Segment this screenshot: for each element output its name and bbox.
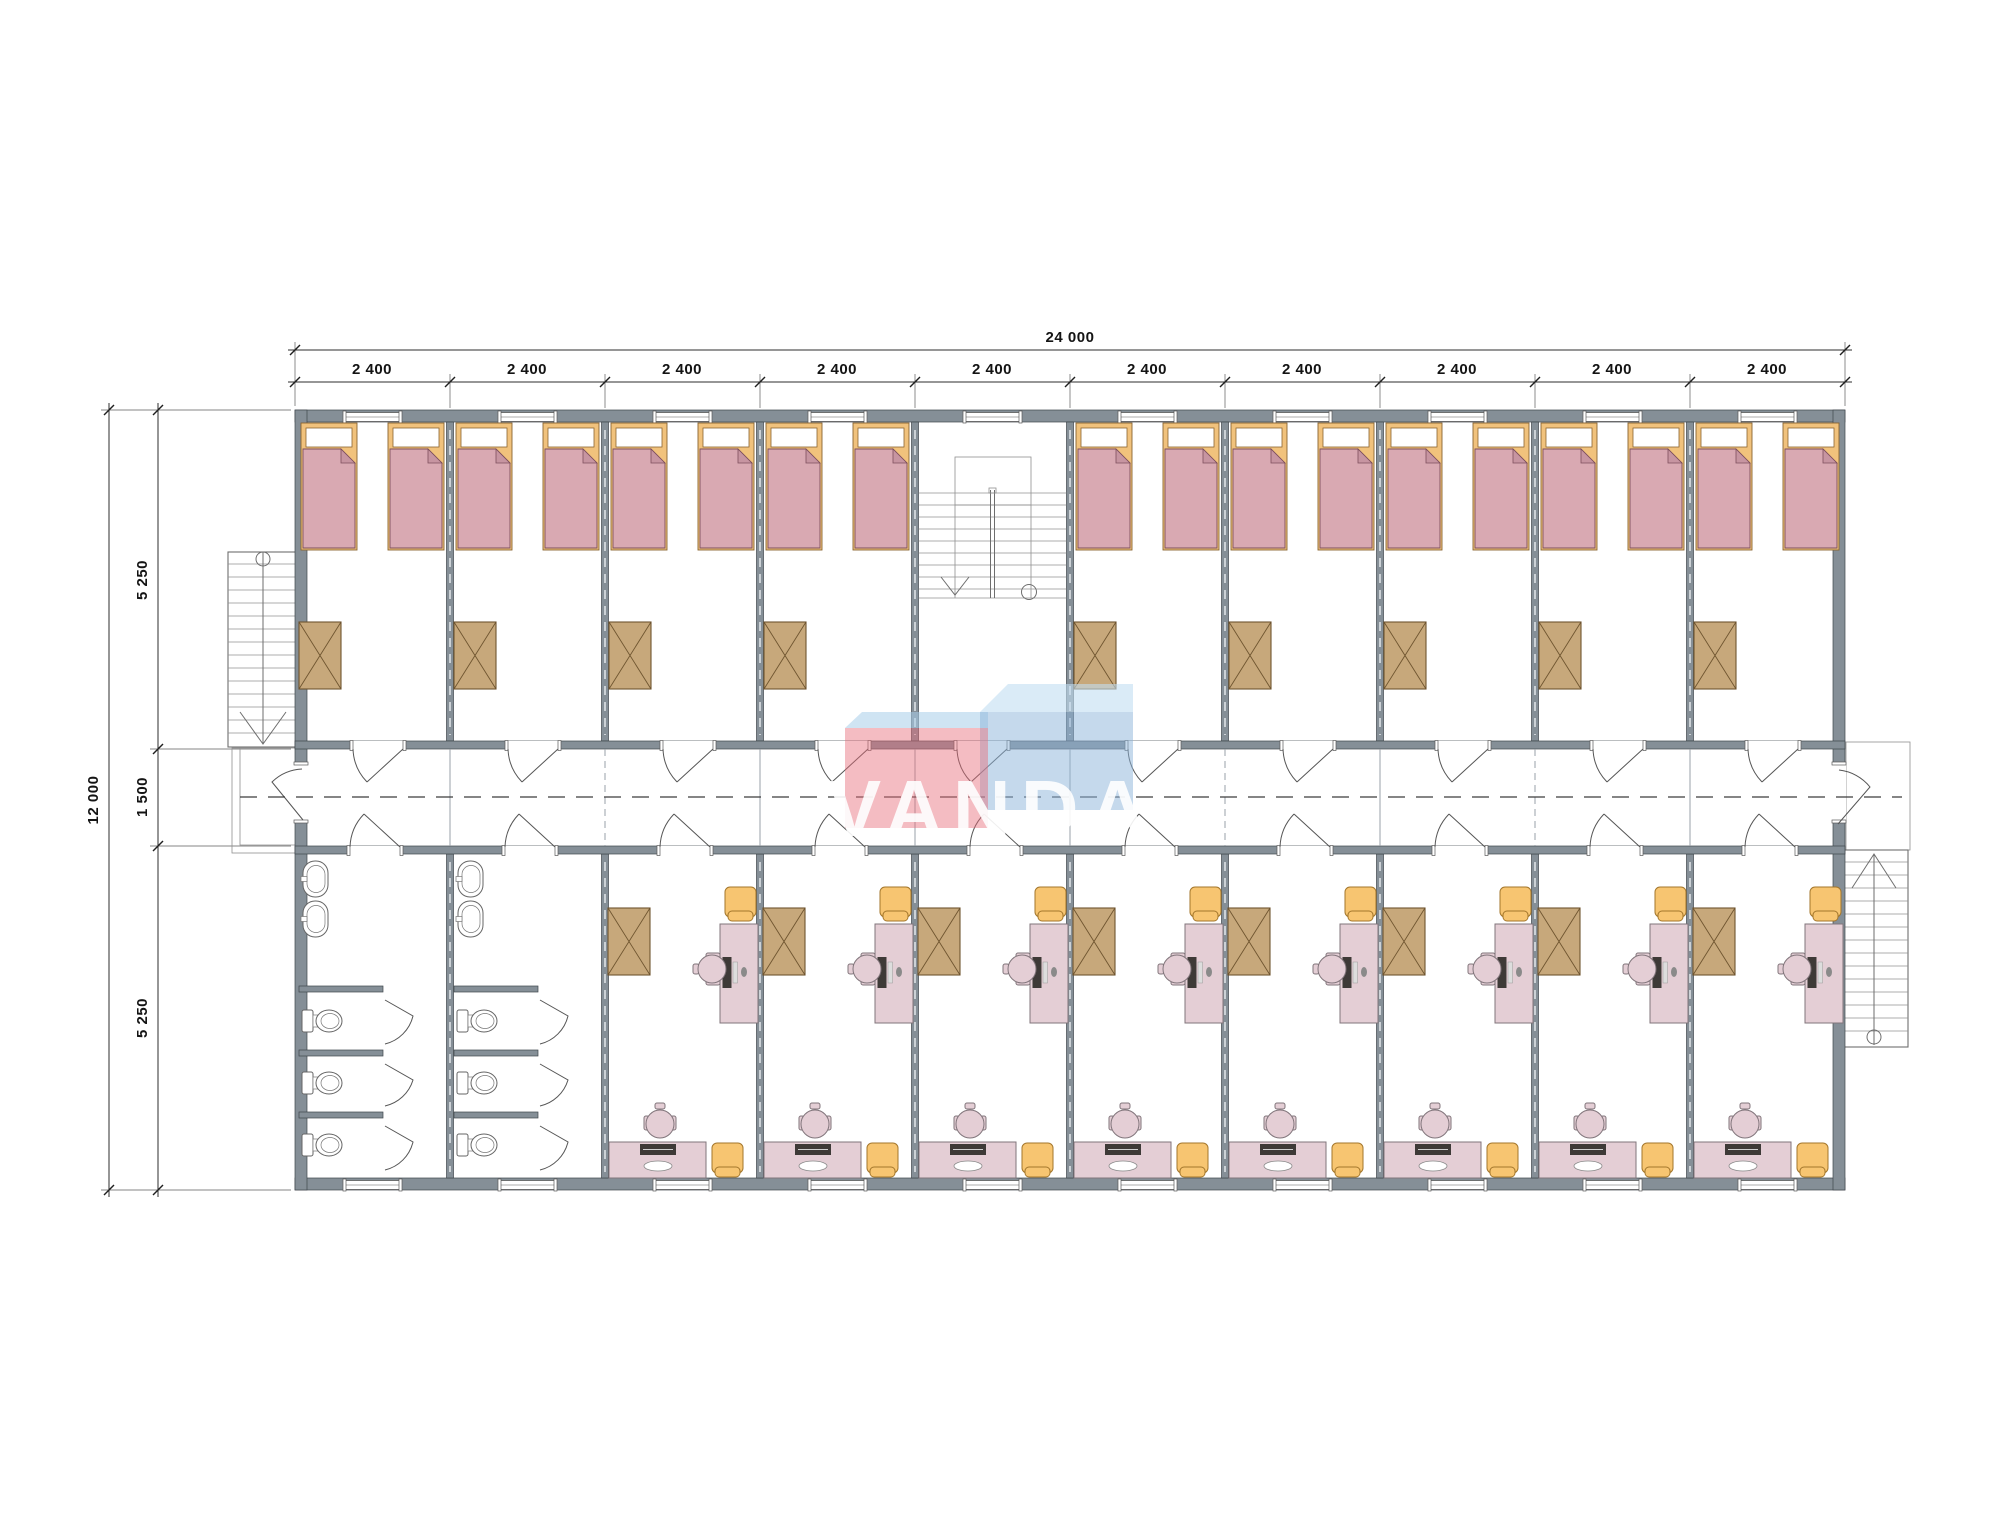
stair-upper-landing xyxy=(955,457,1031,505)
external-stair-left xyxy=(228,552,298,747)
study-room xyxy=(763,887,913,1178)
dim-bay-label: 2 400 xyxy=(1747,361,1787,378)
bedroom xyxy=(299,423,444,689)
bathroom xyxy=(454,861,568,1170)
bathroom xyxy=(299,861,413,1170)
study-room xyxy=(1073,887,1223,1178)
stair-treads xyxy=(919,493,1067,598)
bedroom xyxy=(764,423,909,689)
study-room xyxy=(1693,887,1843,1178)
dimension-top: 24 000 2 400 2 400 2 400 2 400 2 400 2 4… xyxy=(288,329,1852,408)
vanda-logo: VANDA xyxy=(828,684,1157,853)
bedroom xyxy=(1384,423,1529,689)
dim-bay-label: 2 400 xyxy=(972,361,1012,378)
dim-bay-label: 2 400 xyxy=(662,361,702,378)
external-stair-right xyxy=(1840,742,1910,1047)
dim-total-width: 24 000 xyxy=(1046,329,1095,346)
dim-bay-label: 2 400 xyxy=(507,361,547,378)
bedroom xyxy=(454,423,599,689)
bedroom xyxy=(1539,423,1684,689)
dim-left-segment: 5 250 xyxy=(134,998,151,1038)
entrance-porch xyxy=(232,748,303,853)
dim-left-segment: 5 250 xyxy=(134,560,151,600)
logo-slab-top-right xyxy=(980,684,1133,712)
study-room xyxy=(608,887,758,1178)
bedroom xyxy=(609,423,754,689)
dim-bay-label: 2 400 xyxy=(817,361,857,378)
dim-bay-label: 2 400 xyxy=(1592,361,1632,378)
central-stairwell xyxy=(919,457,1067,600)
floor-plan-canvas: 24 000 2 400 2 400 2 400 2 400 2 400 2 4… xyxy=(0,0,2000,1520)
dim-bay-label: 2 400 xyxy=(1282,361,1322,378)
study-room xyxy=(1538,887,1688,1178)
study-room xyxy=(918,887,1068,1178)
logo-text: VANDA xyxy=(828,764,1157,853)
dim-total-height: 12 000 xyxy=(85,776,102,825)
logo-slab-top-left xyxy=(845,712,988,728)
bedroom xyxy=(1229,423,1374,689)
dim-bay-label: 2 400 xyxy=(352,361,392,378)
stair-landing xyxy=(1846,742,1910,850)
dim-bay-label: 2 400 xyxy=(1437,361,1477,378)
dim-left-segment: 1 500 xyxy=(134,777,151,817)
stair-start-marker xyxy=(1022,585,1037,600)
bathrooms xyxy=(299,861,568,1170)
dimension-left: 12 000 5 250 1 500 5 250 xyxy=(85,403,291,1197)
floor-plan-page: 24 000 2 400 2 400 2 400 2 400 2 400 2 4… xyxy=(0,0,2000,1520)
bedroom xyxy=(1694,423,1839,689)
dim-bay-label: 2 400 xyxy=(1127,361,1167,378)
study-room xyxy=(1383,887,1533,1178)
study-room xyxy=(1228,887,1378,1178)
bedroom xyxy=(1074,423,1219,689)
